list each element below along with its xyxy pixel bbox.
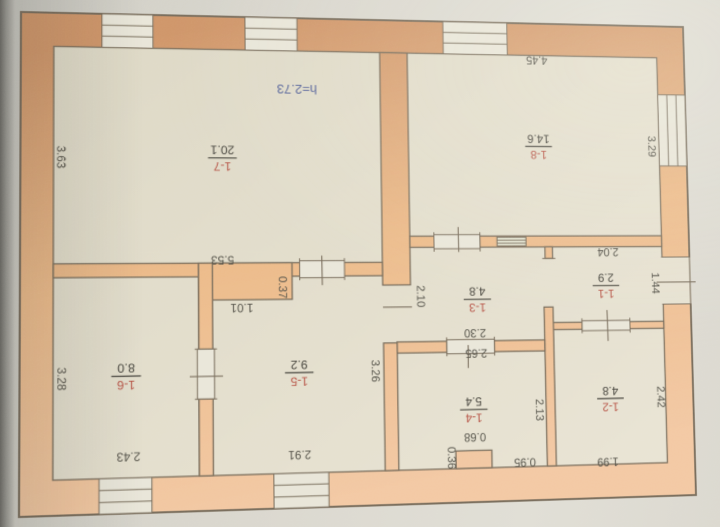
svg-text:4.8: 4.8 [602,384,619,398]
svg-text:14.6: 14.6 [527,132,550,146]
svg-text:2.65: 2.65 [465,346,487,358]
svg-text:0.37: 0.37 [276,276,289,299]
svg-text:1-3: 1-3 [469,301,487,315]
svg-text:1-2: 1-2 [602,400,619,414]
svg-text:1-1: 1-1 [598,287,615,301]
svg-text:2.91: 2.91 [288,448,311,461]
svg-text:8.0: 8.0 [117,361,135,376]
svg-text:20.1: 20.1 [210,143,234,157]
svg-text:4.8: 4.8 [469,284,486,298]
svg-text:3.28: 3.28 [54,367,67,390]
svg-text:1-8: 1-8 [530,148,547,162]
svg-text:5.4: 5.4 [465,394,482,408]
svg-text:2.04: 2.04 [597,245,618,257]
svg-text:1-4: 1-4 [465,411,483,426]
svg-text:5.53: 5.53 [211,253,234,265]
svg-text:2.9: 2.9 [598,271,614,285]
svg-text:1.99: 1.99 [597,455,619,468]
svg-text:1-7: 1-7 [214,159,232,173]
svg-text:0.36: 0.36 [445,447,457,470]
svg-text:2.43: 2.43 [117,449,141,462]
svg-text:2.13: 2.13 [533,399,545,421]
svg-text:2.42: 2.42 [654,386,666,408]
svg-text:h=2.73: h=2.73 [277,82,317,98]
svg-text:9.2: 9.2 [291,357,308,372]
svg-text:1.01: 1.01 [230,301,253,314]
svg-text:0.95: 0.95 [514,455,536,468]
svg-text:1.44: 1.44 [649,272,661,294]
svg-text:3.63: 3.63 [54,146,67,169]
svg-text:2.10: 2.10 [414,285,426,307]
svg-text:1-5: 1-5 [290,374,308,389]
svg-text:3.29: 3.29 [645,136,657,157]
svg-text:1-6: 1-6 [116,378,135,393]
svg-text:0.68: 0.68 [464,430,486,443]
svg-text:2.30: 2.30 [464,326,486,338]
svg-text:3.26: 3.26 [369,360,382,383]
svg-text:4.45: 4.45 [526,53,547,65]
